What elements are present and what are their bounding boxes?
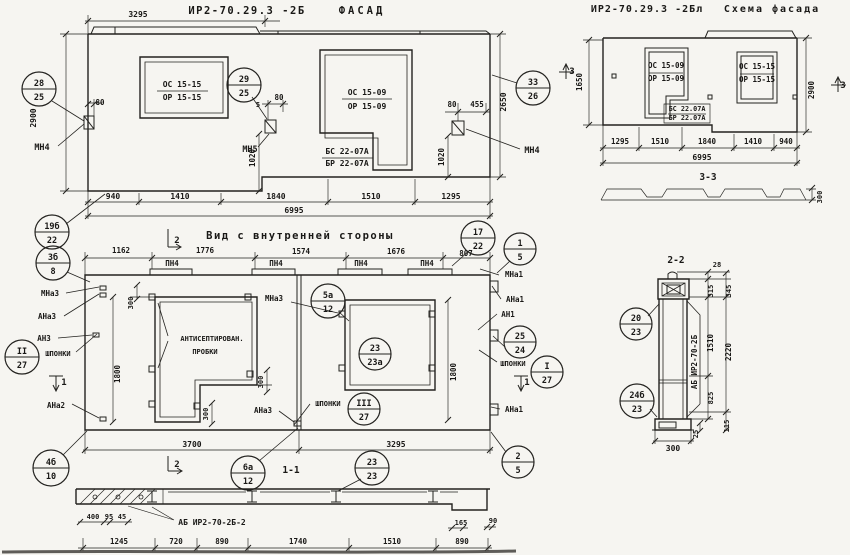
balloon-4b-10-bottom: 10 xyxy=(46,472,56,482)
balloon-20-23-top: 20 xyxy=(631,314,641,324)
schema-dim-2900: 2900 xyxy=(807,80,816,99)
balloon-II-27-bottom: 27 xyxy=(17,361,27,371)
balloon-2-5-bottom: 5 xyxy=(515,466,520,476)
sec1-label-ab: АБ ИР2-70-2Б-2 xyxy=(178,518,246,527)
facade-dim-1295: 1295 xyxy=(441,192,460,201)
balloon-20-23-bottom: 23 xyxy=(631,328,641,338)
facade-panel-br: БР 22-07А xyxy=(325,159,369,168)
sec1-dim-45: 45 xyxy=(118,513,126,521)
sec2-label-ab: АБ ИР2-70-2Б xyxy=(690,334,699,389)
view-mna3-mid: МНа3 xyxy=(265,294,284,303)
view-ana1-top-right: АНа1 xyxy=(506,295,525,304)
balloon-24b-23-bottom: 23 xyxy=(632,405,642,415)
view-antiseptic-line1: АНТИСЕПТИРОВАН. xyxy=(180,335,243,343)
facade-dim-2650: 2650 xyxy=(499,92,508,111)
balloon-28-25-bottom: 25 xyxy=(34,93,44,103)
schema-dim-300: 300 xyxy=(816,191,824,204)
ballo0n-17-22-bottom: 22 xyxy=(473,242,483,252)
facade-window1-os: ОС 15-15 xyxy=(163,80,202,89)
view-shponki-right: ШПОНКИ xyxy=(500,360,525,368)
schema-title-word: Схема фасада xyxy=(724,3,820,15)
sec1-dim-890a: 890 xyxy=(215,537,229,546)
balloon-5a-12-bottom: 12 xyxy=(323,305,333,315)
balloon-25-24: 2524 xyxy=(504,326,536,358)
balloon-24b-23: 24б23 xyxy=(620,384,654,418)
facade-window2-or: ОР 15-09 xyxy=(348,102,387,111)
sec1-dim-1510: 1510 xyxy=(383,537,402,546)
balloon-1-5-top: 1 xyxy=(517,239,522,249)
view-section-label-11: 1-1 xyxy=(282,465,299,476)
view-ana2-left: АНа2 xyxy=(47,401,65,410)
sec2-dim-825: 825 xyxy=(707,392,715,405)
facade-dim-80-right: 80 xyxy=(447,100,457,109)
balloon-III-27-top: III xyxy=(356,399,371,409)
facade-dim-2900: 2900 xyxy=(29,108,38,127)
view-dim-300-bot: 300 xyxy=(202,408,210,421)
view-title: Вид с внутренней стороны xyxy=(206,230,394,242)
view-dim-1776: 1776 xyxy=(196,246,215,255)
facade-dim-3295: 3295 xyxy=(128,10,147,19)
facade-anchor-mn4-right: МН4 xyxy=(524,146,539,156)
balloon-6a-12-top: 6а xyxy=(243,463,253,473)
sec1-dim-95: 95 xyxy=(105,513,113,521)
facade-dim-5: 5 xyxy=(256,101,260,109)
balloon-3b-8-bottom: 8 xyxy=(50,267,55,277)
sec1-dim-90: 90 xyxy=(489,517,497,525)
view-dim-300-top: 300 xyxy=(127,297,135,310)
sec2-dim-25: 25 xyxy=(692,430,700,438)
view-antiseptic-line2: ПРОБКИ xyxy=(192,348,217,356)
facade-dim-1510: 1510 xyxy=(361,192,380,201)
balloon-III-27: III27 xyxy=(348,393,380,425)
facade-dim-1840: 1840 xyxy=(266,192,285,201)
balloon-I-27-bottom: 27 xyxy=(542,376,552,386)
facade-anchor-mn4-left: МН4 xyxy=(34,143,49,153)
view-marker2-bot: 2 xyxy=(174,460,179,470)
balloon-3b-8: 3б8 xyxy=(36,246,70,280)
view-mna3-left: МНа3 xyxy=(41,289,60,298)
balloon-5a-12: 5а12 xyxy=(311,284,345,318)
schema-dim-1410: 1410 xyxy=(744,137,763,146)
facade-dim-80-mid: 80 xyxy=(274,93,284,102)
view-dim-3295: 3295 xyxy=(386,440,405,449)
balloon-III-27-bottom: 27 xyxy=(359,413,369,423)
sec1-dim-400: 400 xyxy=(87,513,100,521)
view-pn4-1: ПН4 xyxy=(165,259,179,268)
sec1-dim-1740: 1740 xyxy=(289,537,308,546)
view-ana3-left: АНа3 xyxy=(38,312,57,321)
facade-title-word: ФАСАД xyxy=(339,5,386,17)
facade-dim-1020-left: 1020 xyxy=(248,148,257,167)
balloon-2-5-top: 2 xyxy=(515,452,520,462)
view-marker1-right: 1 xyxy=(524,378,529,388)
schema-windowA-or: ОР 15-09 xyxy=(648,74,685,83)
facade-dim-455: 455 xyxy=(470,100,484,109)
balloon-23-23: 2323 xyxy=(355,451,389,485)
view-dim-1162: 1162 xyxy=(112,246,130,255)
balloon-1-5-bottom: 5 xyxy=(517,253,522,263)
sec1-dim-890b: 890 xyxy=(455,537,469,546)
view-pn4-2: ПН4 xyxy=(269,259,283,268)
view-dim-1800-left: 1800 xyxy=(113,364,122,383)
sec2-dim-2220: 2220 xyxy=(724,342,733,361)
view-an1-right: АН1 xyxy=(501,310,515,319)
schema-bs: БС 22.07А xyxy=(669,105,706,113)
ballo0n-17-22: 1722 xyxy=(461,221,495,255)
sec2-dim-115: 115 xyxy=(723,420,731,433)
view-dim-3700: 3700 xyxy=(182,440,201,449)
view-marker2-top: 2 xyxy=(174,236,179,246)
view-dim-1676: 1676 xyxy=(387,247,406,256)
view-marker1-left: 1 xyxy=(61,378,66,388)
balloon-25-24-top: 25 xyxy=(515,332,525,342)
balloon-23-23-top: 23 xyxy=(367,458,377,468)
balloon-28-25-top: 28 xyxy=(34,79,44,89)
sec1-dim-165: 165 xyxy=(455,519,468,527)
balloon-33-26: 3326 xyxy=(516,71,550,105)
facade-dim-1020-right: 1020 xyxy=(437,147,446,166)
balloon-24b-23-top: 24б xyxy=(629,390,644,401)
facade-linework xyxy=(52,15,520,219)
schema-dim-1295: 1295 xyxy=(611,137,629,146)
facade-dim-940: 940 xyxy=(106,192,121,201)
balloon-19b-22: 19б22 xyxy=(35,215,69,249)
balloon-5a-12-top: 5а xyxy=(323,291,333,301)
balloon-4b-10-top: 4б xyxy=(46,457,56,468)
schema-marker3-left: 3 xyxy=(569,67,574,77)
view-ana3-mid: АНа3 xyxy=(254,406,273,415)
sec2-dim-28: 28 xyxy=(713,261,721,269)
facade-dim-80-left: 80 xyxy=(95,98,105,107)
balloon-I-27: I27 xyxy=(531,356,563,388)
view-ana1-bot-right: АНа1 xyxy=(505,405,524,414)
view-mna1-right: МНа1 xyxy=(505,270,524,279)
drawing-sheet: 3295ИР2-70.29.3 -2БФАСАД290080МН4ОС 15-1… xyxy=(0,0,850,555)
view-shponki-mid: ШПОНКИ xyxy=(315,400,340,408)
balloon-23-23a: 2323а xyxy=(359,338,391,370)
schema-windowB-os: ОС 15-15 xyxy=(739,62,775,71)
schema-section-label: 3-3 xyxy=(699,172,716,183)
balloon-23-23a-bottom: 23а xyxy=(367,358,382,368)
view-dim-1800-right: 1800 xyxy=(449,362,458,381)
view-dim-1574: 1574 xyxy=(292,247,311,256)
schema-dim-1510: 1510 xyxy=(651,137,670,146)
balloon-II-27: II27 xyxy=(5,340,39,374)
balloon-I-27-top: I xyxy=(544,362,549,372)
sec2-dim-300: 300 xyxy=(666,444,681,453)
balloon-23-23-bottom: 23 xyxy=(367,472,377,482)
drawing-canvas: 3295ИР2-70.29.3 -2БФАСАД290080МН4ОС 15-1… xyxy=(0,0,850,555)
sec2-title: 2-2 xyxy=(667,255,684,266)
balloon-3b-8-top: 3б xyxy=(48,252,58,263)
balloon-25-24-bottom: 24 xyxy=(515,346,525,356)
schema-dim-1840: 1840 xyxy=(698,137,717,146)
balloon-33-26-bottom: 26 xyxy=(528,92,538,102)
callout-balloons-layer: 28252925332619б223б8II271722152524I275а1… xyxy=(5,68,654,490)
view-pn4-4: ПН4 xyxy=(420,259,434,268)
balloon-19b-22-top: 19б xyxy=(44,221,59,232)
balloon-6a-12: 6а12 xyxy=(231,456,265,490)
schema-dim-6995: 6995 xyxy=(692,153,711,162)
balloon-28-25: 2825 xyxy=(22,72,56,106)
section-1-1-linework xyxy=(76,489,496,551)
balloon-20-23: 2023 xyxy=(620,308,652,340)
ballo0n-17-22-top: 17 xyxy=(473,228,483,238)
balloon-23-23a-top: 23 xyxy=(370,344,380,354)
facade-dim-6995: 6995 xyxy=(284,206,303,215)
balloon-1-5: 15 xyxy=(504,233,536,265)
sec2-dim-345: 345 xyxy=(725,285,733,298)
facade-dim-1410: 1410 xyxy=(170,192,189,201)
sec2-dim-1510: 1510 xyxy=(706,333,715,352)
facade-window1-or: ОР 15-15 xyxy=(163,93,202,102)
balloon-2-5: 25 xyxy=(502,446,534,478)
schema-br: БР 22.07А xyxy=(669,114,706,122)
view-shponki-left: ШПОНКИ xyxy=(45,350,70,358)
scan-smudge xyxy=(2,551,516,552)
sec1-dim-720: 720 xyxy=(169,537,183,546)
balloon-33-26-top: 33 xyxy=(528,78,538,88)
balloon-29-25-top: 29 xyxy=(239,75,249,85)
schema-dim-940: 940 xyxy=(779,137,793,146)
schema-windowB-or: ОР 15-15 xyxy=(739,75,775,84)
facade-panel-bs: БС 22-07А xyxy=(325,147,369,156)
schema-title-code: ИР2-70.29.3 -2Бл xyxy=(591,4,703,15)
view-an3-left: АН3 xyxy=(37,334,51,343)
balloon-19b-22-bottom: 22 xyxy=(47,236,57,246)
balloon-6a-12-bottom: 12 xyxy=(243,477,253,487)
view-dim-300-mid: 300 xyxy=(257,376,265,389)
balloon-II-27-top: II xyxy=(17,347,27,357)
schema-dim-1650: 1650 xyxy=(575,72,584,91)
schema-windowA-os: ОС 15-09 xyxy=(648,61,685,70)
sec2-dim-315: 315 xyxy=(707,285,715,298)
balloon-29-25-bottom: 25 xyxy=(239,89,249,99)
balloon-29-25: 2925 xyxy=(227,68,261,102)
balloon-4b-10: 4б10 xyxy=(33,450,69,486)
facade-window2-os: ОС 15-09 xyxy=(348,88,387,97)
schema-marker3-right: 3 xyxy=(840,81,845,91)
facade-title-code: ИР2-70.29.3 -2Б xyxy=(188,5,305,17)
sec1-dim-1245: 1245 xyxy=(110,537,128,546)
view-pn4-3: ПН4 xyxy=(354,259,368,268)
